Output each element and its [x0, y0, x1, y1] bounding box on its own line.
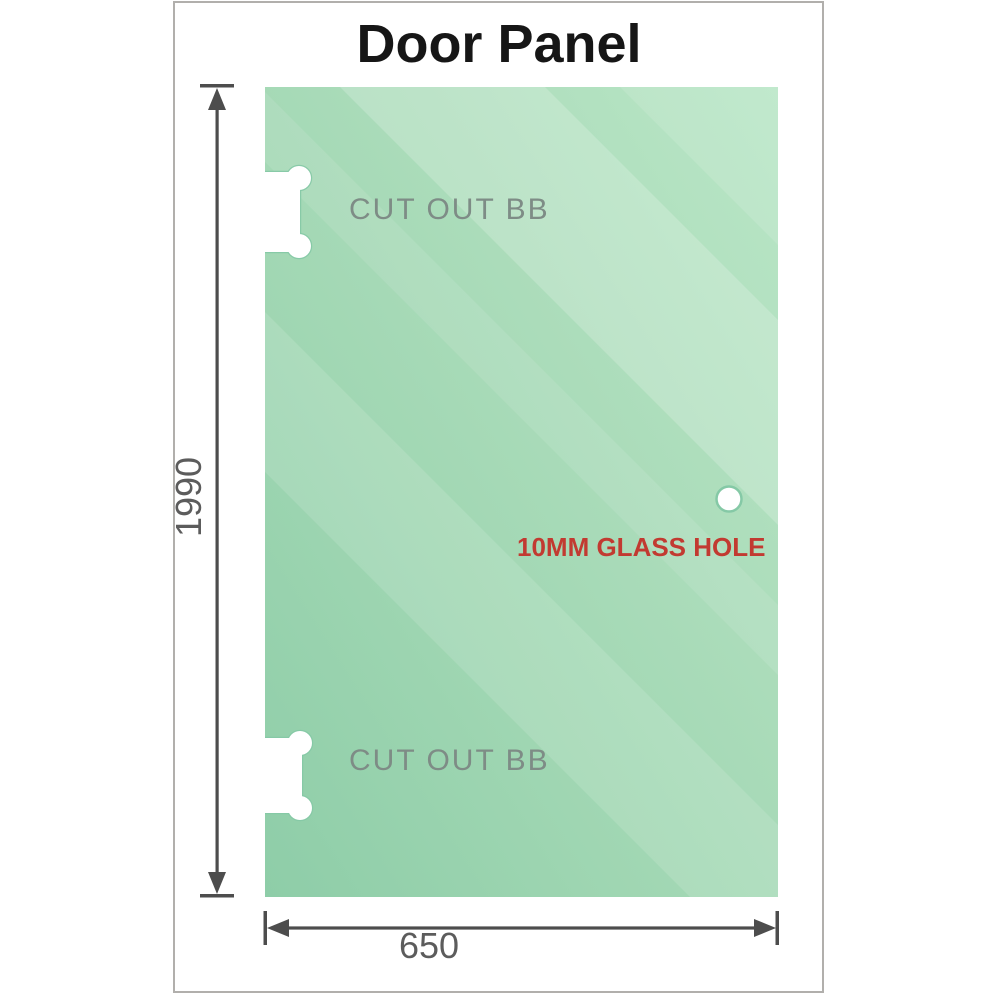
cutout-bb-top-label: CUT OUT BB — [349, 193, 550, 227]
cutout-bb-top-shape — [225, 166, 311, 258]
height-dimension-value: 1990 — [168, 457, 210, 537]
width-dimension-value: 650 — [399, 925, 459, 967]
door-panel-drawing: Door Panel — [0, 0, 1000, 1000]
diagram-svg — [0, 0, 1000, 1000]
glass-hole-label: 10MM GLASS HOLE — [517, 532, 765, 563]
width-dimension-arrow — [264, 911, 780, 945]
cutout-bb-bottom-label: CUT OUT BB — [349, 744, 550, 778]
cutout-bb-bottom-shape — [225, 731, 312, 820]
glass-hole — [717, 487, 742, 512]
